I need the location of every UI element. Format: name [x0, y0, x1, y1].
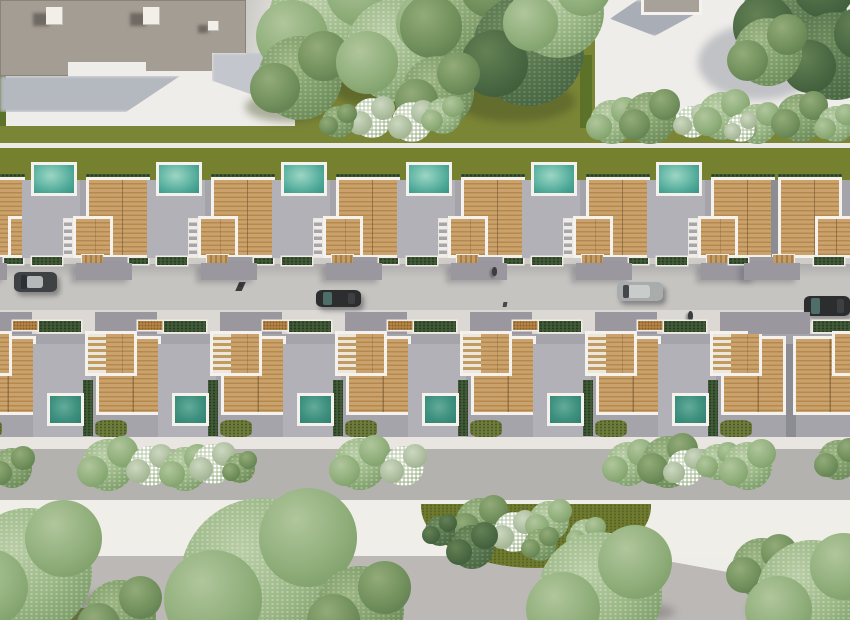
deck-wood: [576, 219, 610, 255]
front-hedge: [32, 257, 62, 265]
deck-wood: [106, 334, 134, 373]
aerial-development-render: [0, 0, 850, 620]
deck-wood: [451, 219, 485, 255]
planter-orange: [638, 321, 664, 330]
pool-water: [50, 396, 81, 423]
car-rear-glass: [837, 299, 844, 313]
bush: [425, 98, 461, 134]
rooftop-unit: [143, 7, 160, 25]
planter-orange: [138, 321, 164, 330]
deck-wood: [201, 219, 235, 255]
party-wall: [786, 344, 793, 437]
deck-stairs: [338, 334, 356, 373]
bird: [501, 302, 509, 307]
hedge-strip: [583, 380, 593, 436]
party-wall: [771, 180, 778, 258]
stair-terrace: [832, 331, 850, 376]
cyclist: [234, 282, 247, 291]
deck-stairs: [213, 334, 231, 373]
lower-terrace: [815, 216, 850, 258]
car-windshield: [21, 275, 27, 289]
driveway-apron: [451, 263, 507, 280]
car-dark-2: [804, 296, 850, 316]
front-hedge: [407, 257, 437, 265]
deck-stairs: [713, 334, 731, 373]
lower-terrace: [448, 216, 488, 258]
bush: [225, 453, 255, 483]
lawn-patch: [595, 420, 627, 437]
front-hedge: [814, 257, 844, 265]
bush: [724, 442, 772, 490]
pool-water: [425, 396, 456, 423]
lower-terrace: [323, 216, 363, 258]
stair-terrace: [210, 331, 262, 376]
driveway-apron: [576, 263, 632, 280]
pool-water: [159, 165, 199, 193]
deck-stairs: [588, 334, 606, 373]
deck-wood: [835, 334, 850, 373]
deck-wood: [731, 334, 759, 373]
pool: [156, 162, 202, 196]
pool: [47, 393, 84, 426]
planter-hedge: [414, 321, 456, 332]
deck-wood: [0, 334, 9, 373]
flowering-bush: [384, 446, 424, 486]
stair-terrace: [85, 331, 137, 376]
car-windshield: [811, 298, 820, 314]
car-dark-roofrack: [14, 272, 57, 292]
pool-water: [284, 165, 324, 193]
car-roof: [628, 285, 650, 298]
deck-wood: [356, 334, 384, 373]
planter-orange: [388, 321, 414, 330]
lawn-patch: [95, 420, 127, 437]
annex-roof-inner: [644, 0, 699, 12]
front-hedge: [282, 257, 312, 265]
stair-terrace: [460, 331, 512, 376]
pedestrian: [688, 311, 693, 321]
deck-stairs: [688, 218, 698, 258]
planter-hedge: [164, 321, 206, 332]
front-hedge: [657, 257, 687, 265]
pool: [672, 393, 709, 426]
deck-stairs: [438, 218, 448, 258]
pool-water: [534, 165, 574, 193]
pool: [406, 162, 452, 196]
pool-water: [300, 396, 331, 423]
pool-water: [659, 165, 699, 193]
rooftop-unit: [208, 21, 219, 31]
bush: [624, 92, 676, 144]
car-dark: [316, 290, 361, 307]
deck-stairs: [63, 218, 73, 258]
deck-stairs: [313, 218, 323, 258]
bush: [818, 106, 850, 142]
planter-orange: [513, 321, 539, 330]
pool-water: [34, 165, 74, 193]
hedge-strip: [208, 380, 218, 436]
pool: [422, 393, 459, 426]
driveway-apron: [326, 263, 382, 280]
planter-hedge: [39, 321, 81, 332]
planter-hedge: [289, 321, 331, 332]
pool: [656, 162, 702, 196]
hedge-strip: [83, 380, 93, 436]
pedestrian-2: [492, 267, 497, 276]
driveway-apron: [201, 263, 257, 280]
hedge-strip: [333, 380, 343, 436]
pool-water: [550, 396, 581, 423]
deck-stairs: [463, 334, 481, 373]
pool: [31, 162, 77, 196]
bush: [818, 440, 850, 480]
flowering-bush: [352, 98, 392, 138]
pool: [547, 393, 584, 426]
pool: [281, 162, 327, 196]
pool-water: [675, 396, 706, 423]
driveway-apron: [0, 263, 7, 280]
pool-water: [175, 396, 206, 423]
driveway-apron: [744, 263, 800, 280]
lower-terrace: [573, 216, 613, 258]
stair-terrace: [335, 331, 387, 376]
driveway-apron: [748, 312, 810, 334]
deck-wood: [76, 219, 110, 255]
lower-terrace: [73, 216, 113, 258]
car-rear-glass: [348, 293, 355, 304]
bush: [334, 438, 386, 490]
flowering-bush: [727, 114, 755, 142]
rooftop-unit: [46, 7, 63, 25]
lawn-patch: [470, 420, 502, 437]
bush: [425, 516, 455, 546]
lawn-patch: [720, 420, 752, 437]
stair-terrace: [710, 331, 762, 376]
hedge-strip: [708, 380, 718, 436]
pool: [531, 162, 577, 196]
car-windshield: [323, 292, 332, 305]
bush: [450, 525, 494, 569]
car-roof: [26, 276, 43, 288]
deck-wood: [231, 334, 259, 373]
deck-wood: [326, 219, 360, 255]
deck-wood: [606, 334, 634, 373]
stair-terrace: [0, 331, 12, 376]
planter-hedge: [664, 321, 706, 332]
bush: [322, 106, 354, 138]
deck-stairs: [188, 218, 198, 258]
tree: [0, 508, 92, 620]
rooftop-unit-shadow: [198, 25, 208, 33]
deck-wood: [818, 219, 850, 255]
pool-water: [409, 165, 449, 193]
cyclist-body: [238, 283, 243, 287]
deck-stairs: [563, 218, 573, 258]
deck-wood: [701, 219, 735, 255]
front-hedge: [157, 257, 187, 265]
annex-building-roof: [641, 0, 702, 15]
driveway-apron: [76, 263, 132, 280]
planter-hedge: [539, 321, 581, 332]
lower-terrace: [198, 216, 238, 258]
pool: [172, 393, 209, 426]
deck-stairs: [88, 334, 106, 373]
pool: [297, 393, 334, 426]
deck-wood: [481, 334, 509, 373]
tree: [734, 18, 802, 86]
lower-terrace: [698, 216, 738, 258]
hedge-strip: [458, 380, 468, 436]
car-silver: [617, 282, 663, 301]
car-windshield: [623, 285, 629, 298]
planter-orange: [13, 321, 39, 330]
stair-terrace: [585, 331, 637, 376]
planter-orange: [263, 321, 289, 330]
front-hedge: [532, 257, 562, 265]
lawn-patch: [220, 420, 252, 437]
